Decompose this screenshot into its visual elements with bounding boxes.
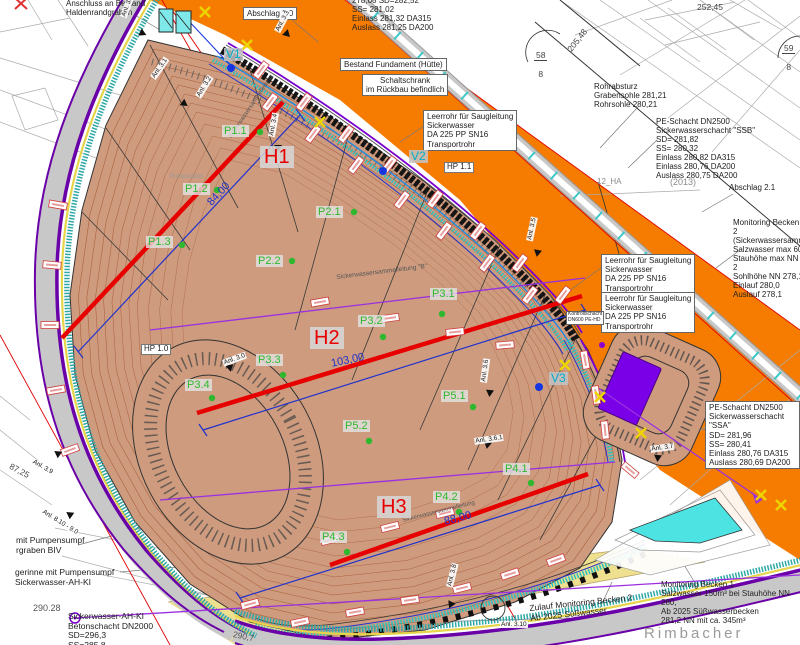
note-rohrabsturz: Rohrabsturz Grabensohle 281,21 Rohrsohle… bbox=[594, 83, 667, 110]
profile-label-h3: H3 bbox=[377, 496, 411, 518]
survey-point-label: P4.1 bbox=[503, 463, 530, 475]
note-pe-schacht-ssb: PE-Schacht DN2500 Sickerwasserschacht "S… bbox=[656, 118, 755, 181]
survey-point-label: P3.1 bbox=[430, 288, 457, 300]
measure-25245: 252,45 bbox=[697, 3, 723, 13]
v-point-label: V2 bbox=[409, 150, 428, 163]
survey-point-label: P1.1 bbox=[222, 125, 249, 137]
parcel-numerator: 58 bbox=[534, 51, 547, 61]
note-top-shaft-data: 278,08 SD=282,52 SS= 281,02 Einlass 281,… bbox=[352, 0, 433, 33]
violet-dot bbox=[599, 342, 605, 348]
note-abschlag-2-1: Abschlag 2.1 bbox=[729, 184, 775, 193]
survey-point-label: P1.2 bbox=[183, 183, 210, 195]
note-monitoring-becken-2: Monitoring Becken 2 (Sickerwassersamm Sa… bbox=[733, 219, 800, 300]
profile-label-h2: H2 bbox=[310, 327, 344, 349]
red-x-mark bbox=[15, 0, 27, 9]
hp-point-label: HP 1.0 bbox=[141, 344, 171, 355]
survey-point-label: P3.2 bbox=[358, 315, 385, 327]
hp-point-label: HP 1.1 bbox=[444, 162, 474, 173]
survey-point-label: P3.4 bbox=[185, 379, 212, 391]
note-ha: 12_HA bbox=[597, 178, 621, 187]
profile-label-h1: H1 bbox=[260, 146, 294, 168]
parcel-denominator: 8 bbox=[538, 69, 543, 79]
note-pumpensumpf: mit Pumpensumpf rgraben BIV bbox=[16, 536, 85, 555]
note-kontrollschacht: Kontrollschacht DN600 PE-HD bbox=[566, 311, 604, 325]
survey-point-label: P5.1 bbox=[441, 390, 468, 402]
parcel-numerator: 59 bbox=[782, 44, 795, 54]
note-leerrohr-1: Leerrohr für Saugleitung Sickerwasser DA… bbox=[423, 110, 517, 151]
note-anschluss: Anschluss an Bestand Haldenrandgraben bbox=[66, 0, 145, 18]
note-bestand-fundament: Bestand Fundament (Hütte) bbox=[340, 58, 447, 71]
site-plan: Anschluss an Bestand Haldenrandgraben 27… bbox=[0, 0, 800, 645]
note-gerinne: gerinne mit Pumpensumpf Sickerwasser-AH-… bbox=[15, 568, 114, 587]
note-monitoring-becken-1: Monitoring Becken 1 Salzwasser 150m³ bei… bbox=[661, 581, 800, 626]
note-pe-schacht-ssa: PE-Schacht DN2500 Sickerwasserschacht "S… bbox=[705, 401, 800, 469]
survey-point-label: P2.1 bbox=[316, 206, 343, 218]
parcel-58-8: 58 8 bbox=[534, 42, 547, 79]
note-pumpstation: Pumpstation bbox=[170, 174, 203, 181]
parcel-denominator: 8 bbox=[786, 62, 791, 72]
parcel-59-8: 59 8 bbox=[782, 35, 795, 72]
v-point-label: V1 bbox=[224, 48, 243, 61]
note-leerrohr-2: Leerrohr für Saugleitung Sickerwasser DA… bbox=[601, 254, 695, 295]
note-year: (2013) bbox=[670, 177, 696, 187]
anl-label: Anl. 3.10 bbox=[500, 621, 528, 628]
survey-point-label: P1.3 bbox=[146, 236, 173, 248]
survey-point-label: P3.3 bbox=[256, 354, 283, 366]
street-name: Rimbacher bbox=[644, 626, 744, 643]
note-schaltschrank: Schaltschrank im Rückbau befindlich bbox=[362, 74, 448, 96]
note-sickerwasser-ahki: Sickerwasser-AH-KI Betonschacht DN2000 S… bbox=[68, 612, 153, 645]
v-point-label: V3 bbox=[549, 372, 568, 385]
survey-point-label: P5.2 bbox=[343, 420, 370, 432]
measure-29028: 290.28 bbox=[33, 603, 61, 613]
survey-point-label: P4.3 bbox=[320, 531, 347, 543]
note-leerrohr-3: Leerrohr für Saugleitung Sickerwasser DA… bbox=[601, 292, 695, 333]
survey-point-label: P2.2 bbox=[256, 255, 283, 267]
survey-point-label: P4.2 bbox=[433, 491, 460, 503]
buildings-cyan bbox=[159, 9, 191, 33]
